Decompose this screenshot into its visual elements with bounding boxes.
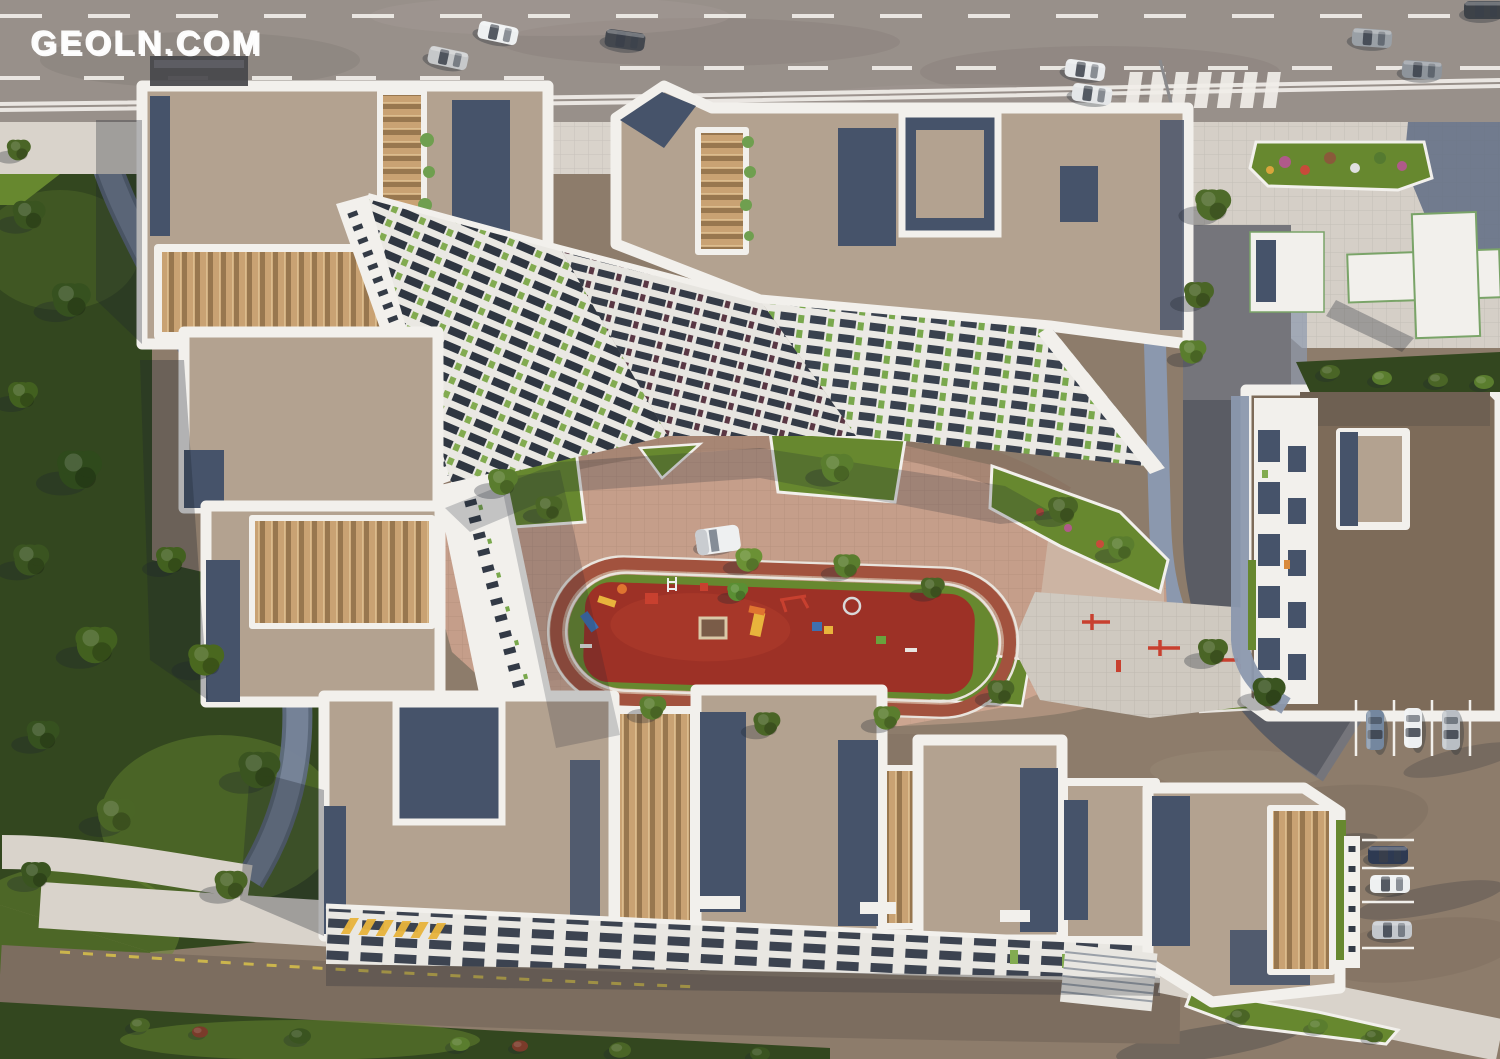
wood-deck: [616, 710, 694, 928]
flowerbed: [1250, 142, 1432, 190]
watermark-text: GEOLN.COM: [30, 24, 262, 62]
watermark: GEOLN.COM GEOLN.COM: [30, 24, 264, 64]
aerial-render: GEOLN.COM GEOLN.COM: [0, 0, 1500, 1059]
pergola: [698, 130, 746, 252]
wood-deck: [1270, 808, 1332, 972]
wood-deck: [252, 518, 432, 626]
building-cluster-b: [184, 332, 440, 702]
